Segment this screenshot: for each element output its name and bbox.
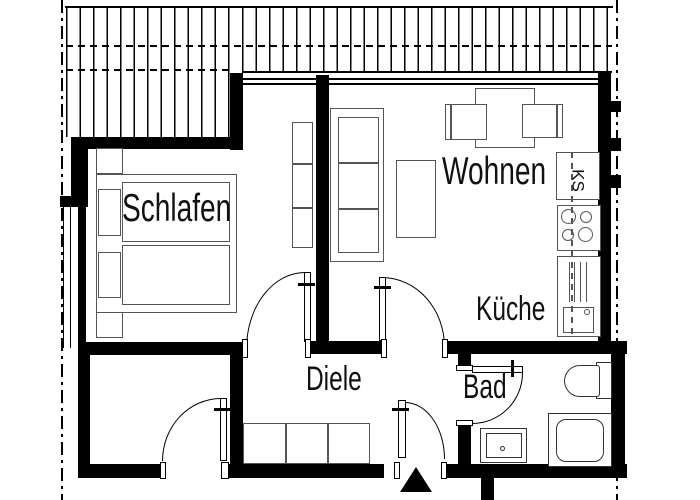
bedroom-door-jamb-left — [242, 339, 248, 358]
roof-height-line-2 — [66, 69, 230, 71]
storage-door-arc — [162, 398, 221, 461]
hall-sideboard — [243, 423, 370, 464]
bath-sink-drain — [500, 446, 505, 451]
bedroom-door-tip-mark — [298, 283, 315, 286]
wall-bottom-1 — [78, 464, 164, 478]
bath-door-jamb-bottom — [456, 420, 473, 426]
wall-right-stub-1 — [611, 101, 621, 112]
wall-corridor-stub — [481, 478, 494, 500]
burner-4 — [578, 227, 593, 242]
sideboard-divider-1 — [285, 423, 287, 464]
bed-pillow-1 — [98, 189, 121, 236]
wall-right-stub-3 — [611, 175, 621, 188]
chair-left-backrest — [450, 104, 452, 140]
entrance-arrow — [400, 467, 432, 492]
wall-left-lower — [78, 205, 86, 345]
wall-left-upper — [71, 137, 88, 205]
label-bath: Bad — [463, 370, 507, 404]
bedroom-door-arc — [246, 272, 305, 349]
wall-bedroom-bottom — [78, 342, 248, 355]
roof-height-line-1 — [66, 45, 612, 47]
drainer-line-4 — [586, 262, 587, 302]
sofa-seat — [338, 117, 379, 253]
entrance-door-jamb-right — [441, 462, 447, 479]
chair-right-backrest — [556, 104, 558, 138]
wall-right-stub-2 — [611, 138, 621, 151]
wardrobe-divider-1 — [292, 163, 313, 165]
window-band-line-2 — [243, 83, 598, 85]
drainer-line-2 — [574, 262, 575, 302]
storage-door-tip-mark — [214, 408, 231, 411]
roof-hatch-right — [242, 8, 612, 73]
shower-basin — [556, 419, 604, 462]
label-fridge: KS — [570, 161, 587, 201]
drainer-line-3 — [580, 262, 581, 302]
wall-storage-left — [78, 345, 90, 470]
label-kitchen: Küche — [476, 292, 545, 326]
entrance-door-tip-mark — [392, 408, 409, 411]
wall-hall-top-mid — [308, 341, 385, 354]
sofa-cushion-line-1 — [338, 162, 379, 164]
burner-2 — [580, 211, 592, 223]
entrance-door-arc — [405, 402, 445, 459]
nightstand-bottom — [96, 312, 123, 338]
label-bedroom: Schlafen — [122, 189, 231, 228]
burner-1 — [561, 209, 576, 224]
wall-storage-right — [230, 353, 243, 478]
floor-plan: Schlafen Wohnen Küche Diele Bad KS — [0, 0, 700, 500]
wardrobe-divider-2 — [292, 207, 313, 209]
label-living: Wohnen — [442, 152, 546, 191]
wall-bath-right — [611, 347, 625, 478]
sofa-cushion-line-2 — [338, 208, 379, 210]
bed-pillow-2 — [98, 252, 121, 298]
label-hall: Diele — [306, 362, 362, 396]
living-door-arc — [382, 277, 445, 347]
toilet-bowl — [564, 365, 600, 397]
living-door-jamb-right — [442, 339, 448, 358]
coffee-table — [396, 160, 436, 238]
window-band-line-1 — [243, 78, 598, 80]
wall-kitchen-bath — [444, 341, 627, 354]
sideboard-divider-2 — [327, 423, 329, 464]
roof-hatch-left — [66, 8, 230, 137]
kitchen-faucet — [584, 309, 590, 315]
wall-knee-left — [63, 205, 71, 348]
bedroom-door-jamb-right — [305, 339, 311, 358]
bedroom-wardrobe — [292, 122, 313, 248]
storage-door-jamb-right — [221, 462, 229, 479]
living-door-jamb-left — [381, 339, 387, 358]
nightstand-top — [96, 148, 123, 174]
wall-bottom-2 — [223, 464, 384, 478]
bath-door-tip-mark — [511, 360, 514, 377]
storage-door-jamb-left — [160, 462, 166, 479]
wall-bedroom-living-divider — [316, 75, 329, 353]
bed-mattress-2 — [122, 245, 230, 305]
living-door-tip-mark — [374, 286, 391, 289]
